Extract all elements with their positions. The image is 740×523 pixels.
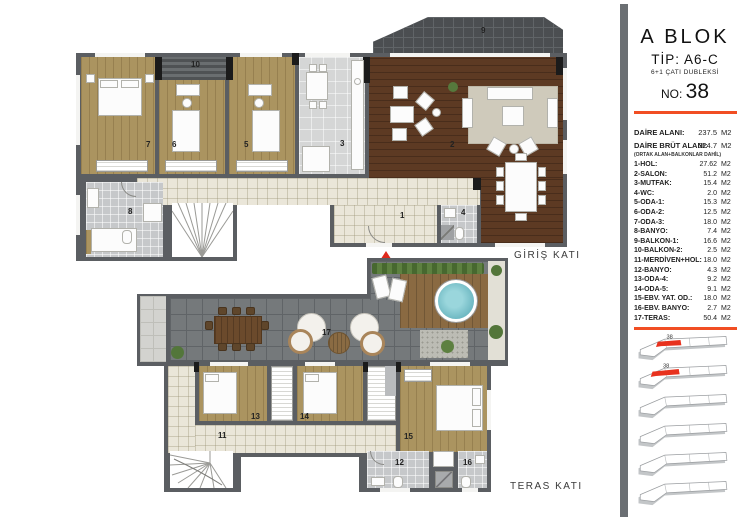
balcony-9	[373, 17, 563, 57]
column	[363, 57, 370, 83]
upper-floor-plan: 7 6 5 3 2 1 4 8 9 10 GİRİŞ KATI	[0, 0, 620, 270]
window	[240, 53, 282, 57]
toilet	[122, 230, 132, 244]
chair	[309, 64, 317, 72]
wc-toilet	[455, 227, 464, 240]
area-row: DAİRE BRÜT ALANI:324.7M2	[632, 141, 738, 151]
window	[305, 362, 335, 366]
window	[95, 53, 145, 57]
window	[462, 488, 478, 492]
room-row: 1-HOL:27.62M2	[632, 161, 738, 171]
plant	[441, 340, 454, 353]
chair	[232, 343, 241, 351]
chair	[496, 181, 504, 191]
chair	[496, 167, 504, 177]
closet	[433, 451, 454, 467]
room-row: 15-EBV. YAT. OD.:18.0M2	[632, 295, 738, 305]
floor-diagram-4[interactable]	[632, 420, 738, 448]
window	[495, 243, 545, 247]
kitchen-sink	[354, 78, 361, 85]
chair	[218, 343, 227, 351]
jacuzzi	[435, 280, 477, 322]
round-side-table	[328, 332, 350, 354]
room-row: 14-ODA-5:9.1M2	[632, 286, 738, 296]
wardrobe	[271, 366, 293, 421]
room-label-16: 16	[463, 459, 472, 467]
pillow	[305, 374, 319, 382]
room-label-11: 11	[218, 432, 226, 440]
chair	[254, 98, 264, 108]
sidebar-divider-bar	[620, 4, 628, 517]
floor-diagram-5[interactable]	[632, 449, 738, 477]
chair	[538, 195, 546, 205]
window	[76, 75, 80, 145]
pillow	[472, 388, 481, 406]
shower	[435, 471, 453, 488]
side-table	[432, 108, 441, 117]
hall-11-left	[168, 366, 195, 453]
room-label-3: 3	[340, 140, 344, 148]
room-row: 5-ODA-1:15.3M2	[632, 199, 738, 209]
pillow	[121, 80, 139, 88]
chair	[496, 195, 504, 205]
chair	[218, 307, 227, 315]
coffee-table	[502, 106, 524, 126]
column	[363, 362, 368, 372]
room-row: 8-BANYO:7.4M2	[632, 228, 738, 238]
room-label-13: 13	[251, 413, 260, 421]
outdoor-table	[214, 316, 262, 344]
chair	[319, 101, 327, 109]
column	[155, 57, 162, 80]
column	[396, 362, 401, 372]
sofa	[487, 87, 533, 100]
hedge-planter	[372, 263, 484, 274]
desk	[248, 84, 272, 96]
lower-floor-plan: 17 13 14 15 11 12 16 TERAS KATI	[0, 255, 620, 523]
floor-diagram-6[interactable]	[632, 478, 738, 506]
nightstand	[86, 74, 95, 83]
column	[473, 178, 481, 190]
chair	[182, 98, 192, 108]
unit-type: TİP: A6-C	[632, 52, 738, 67]
kitchen-cabinet	[302, 146, 330, 172]
wc-sink	[444, 208, 456, 218]
chair	[261, 321, 269, 330]
room-row: 13-ODA-4:9.2M2	[632, 276, 738, 286]
toilet	[393, 476, 403, 488]
room-row: 7-ODA-3:18.0M2	[632, 219, 738, 229]
window	[563, 140, 567, 174]
chair	[319, 64, 327, 72]
desk	[176, 84, 200, 96]
column	[226, 57, 233, 80]
pillow	[472, 409, 481, 427]
plant	[448, 82, 458, 92]
room-row: 17-TERAS:50.4M2	[632, 315, 738, 325]
room-label-9: 9	[481, 27, 485, 35]
kitchen-table	[306, 72, 328, 100]
window	[210, 362, 248, 366]
stairs-lower	[170, 451, 233, 488]
window	[380, 488, 410, 492]
window	[305, 53, 350, 57]
sink	[475, 455, 485, 464]
closet	[404, 369, 432, 382]
sink	[371, 477, 385, 486]
window	[487, 390, 491, 430]
room-label-1: 1	[400, 212, 404, 220]
chair	[515, 153, 527, 161]
plant	[489, 325, 503, 339]
room-row: 10-BALKON-2:2.5M2	[632, 247, 738, 257]
unit-number-value: 38	[686, 80, 709, 103]
floor-diagram-3[interactable]	[632, 391, 738, 419]
room-label-6: 6	[172, 141, 176, 149]
armchair	[392, 128, 407, 141]
nightstand	[145, 74, 154, 83]
stairs-upper	[172, 203, 233, 257]
single-bed	[252, 110, 280, 152]
wardrobe	[96, 160, 148, 172]
room-row: 4-WC:2.0M2	[632, 190, 738, 200]
armchair	[462, 98, 473, 128]
unit-subtype: 6+1 ÇATI DUBLEKSİ	[632, 69, 738, 76]
column	[194, 362, 199, 372]
room-row: 2-SALON:51.2M2	[632, 171, 738, 181]
chair	[309, 101, 317, 109]
column	[292, 53, 299, 65]
accent-rule-bottom	[634, 327, 737, 330]
chair	[538, 167, 546, 177]
window	[430, 362, 470, 366]
area-row: DAİRE ALANI:237.5M2	[632, 128, 738, 138]
column	[556, 57, 563, 75]
unit-number-label: NO:	[661, 87, 682, 101]
room-row: 6-ODA-2:12.5M2	[632, 209, 738, 219]
shaft	[385, 366, 396, 396]
floor-diagram-badge: 38	[663, 363, 669, 369]
room-label-5: 5	[244, 141, 248, 149]
dining-table	[505, 162, 537, 212]
sidebar: A BLOK TİP: A6-C 6+1 ÇATI DUBLEKSİ NO: 3…	[632, 0, 738, 523]
room-label-17: 17	[322, 329, 331, 337]
room-label-4: 4	[461, 209, 465, 217]
floor-diagram-1-selected[interactable]: 38	[632, 333, 738, 361]
pillow	[100, 80, 118, 88]
floor-diagram-2-selected[interactable]: 38	[632, 362, 738, 390]
room-label-12: 12	[395, 459, 404, 467]
room-row: 11-MERDİVEN+HOL:18.0M2	[632, 257, 738, 267]
plant	[171, 346, 184, 359]
chair	[232, 307, 241, 315]
room-label-8: 8	[128, 208, 132, 216]
closet	[143, 203, 162, 222]
floor-diagram-badge: 38	[667, 334, 673, 340]
area-table: DAİRE ALANI:237.5M2 DAİRE BRÜT ALANI:324…	[632, 128, 738, 328]
armchair	[547, 98, 558, 128]
chair	[246, 307, 255, 315]
window	[390, 53, 550, 57]
accent-rule-top	[634, 111, 737, 114]
coffee-table	[390, 106, 414, 123]
kitchen-counter	[351, 60, 364, 170]
chair	[538, 181, 546, 191]
toilet	[461, 476, 471, 488]
room-label-14: 14	[300, 413, 309, 421]
chair	[246, 343, 255, 351]
room-row: 9-BALKON-1:16.6M2	[632, 238, 738, 248]
plant	[491, 265, 502, 276]
lounge-chair-rattan	[288, 329, 313, 354]
sauna-bench	[86, 230, 91, 254]
chair	[515, 213, 527, 221]
room-label-7: 7	[146, 141, 150, 149]
hall-1-floor	[334, 205, 437, 243]
corridor-1-floor	[137, 178, 480, 205]
wardrobe	[236, 160, 288, 172]
lounge-chair-rattan	[360, 331, 385, 356]
lower-plan-title: TERAS KATI	[510, 481, 583, 492]
room-row: 16-EBV. BANYO:2.7M2	[632, 305, 738, 315]
window	[76, 195, 80, 235]
chair	[205, 321, 213, 330]
window	[563, 68, 567, 120]
entry-door-opening	[366, 243, 392, 247]
room-row: 12-BANYO:4.3M2	[632, 267, 738, 277]
room-label-10: 10	[191, 61, 200, 69]
armchair	[393, 86, 408, 99]
room-label-15: 15	[404, 433, 413, 441]
room-row: 3-MUTFAK:15.4M2	[632, 180, 738, 190]
wardrobe	[165, 160, 217, 172]
side-pavers	[140, 296, 166, 362]
shower-corner	[441, 225, 454, 240]
unit-number: NO: 38	[632, 80, 738, 104]
room-label-2: 2	[450, 141, 454, 149]
sink	[87, 188, 99, 208]
block-title: A BLOK	[632, 26, 738, 49]
pillow	[205, 374, 219, 382]
